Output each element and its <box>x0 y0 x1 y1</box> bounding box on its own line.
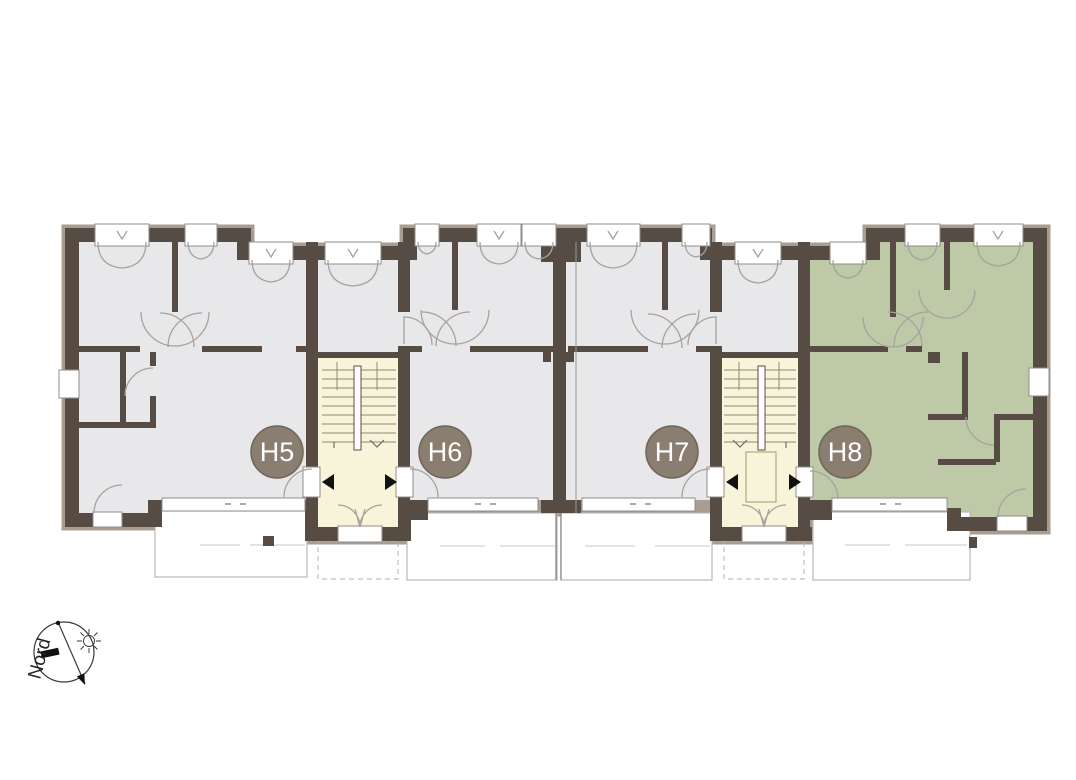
door-entry-h6 <box>396 467 413 497</box>
door-entry-h5 <box>303 467 320 497</box>
north-label: Nord <box>25 636 56 681</box>
walkway-left <box>318 541 398 579</box>
north-needle <box>58 622 85 684</box>
walkway-right <box>724 541 804 579</box>
unit-h6-label: H6 <box>428 437 463 467</box>
window <box>249 242 293 264</box>
terrace-h8 <box>813 512 970 580</box>
window <box>587 224 640 246</box>
patio-window-h8 <box>832 498 947 511</box>
window <box>830 242 866 264</box>
unit-h8-label: H8 <box>828 437 863 467</box>
unit-h5-label: H5 <box>260 437 295 467</box>
floor-plan-page: H5 H6 H7 H8 Nord <box>0 0 1076 780</box>
window-west <box>59 370 79 398</box>
unit-h7-label: H7 <box>655 437 690 467</box>
window-east <box>1029 368 1049 396</box>
sun-icon <box>77 629 101 653</box>
window <box>522 224 556 246</box>
unit-h8-badge: H8 <box>819 426 871 478</box>
unit-h6-badge: H6 <box>419 426 471 478</box>
floor-plan-canvas: H5 H6 H7 H8 Nord <box>0 0 1076 780</box>
window <box>905 224 940 246</box>
patio-window-h5 <box>162 498 305 511</box>
unit-h5-badge: H5 <box>251 426 303 478</box>
window <box>95 224 149 246</box>
terraces <box>155 511 970 580</box>
window <box>735 242 781 264</box>
door-h8-southeast <box>997 516 1027 531</box>
door-entry-h7 <box>707 467 724 497</box>
window <box>477 224 521 246</box>
door-entrance-left <box>338 526 382 542</box>
door-h5-southwest <box>93 512 122 527</box>
window <box>974 224 1023 246</box>
unit-h7-badge: H7 <box>646 426 698 478</box>
door-entrance-right <box>742 526 786 542</box>
patio-window-h7 <box>582 498 695 511</box>
patio-window-h6 <box>428 498 538 511</box>
window <box>325 242 381 264</box>
window <box>185 224 217 246</box>
window <box>682 224 710 246</box>
compass: Nord <box>25 621 101 685</box>
terrace-h5 <box>155 511 307 577</box>
